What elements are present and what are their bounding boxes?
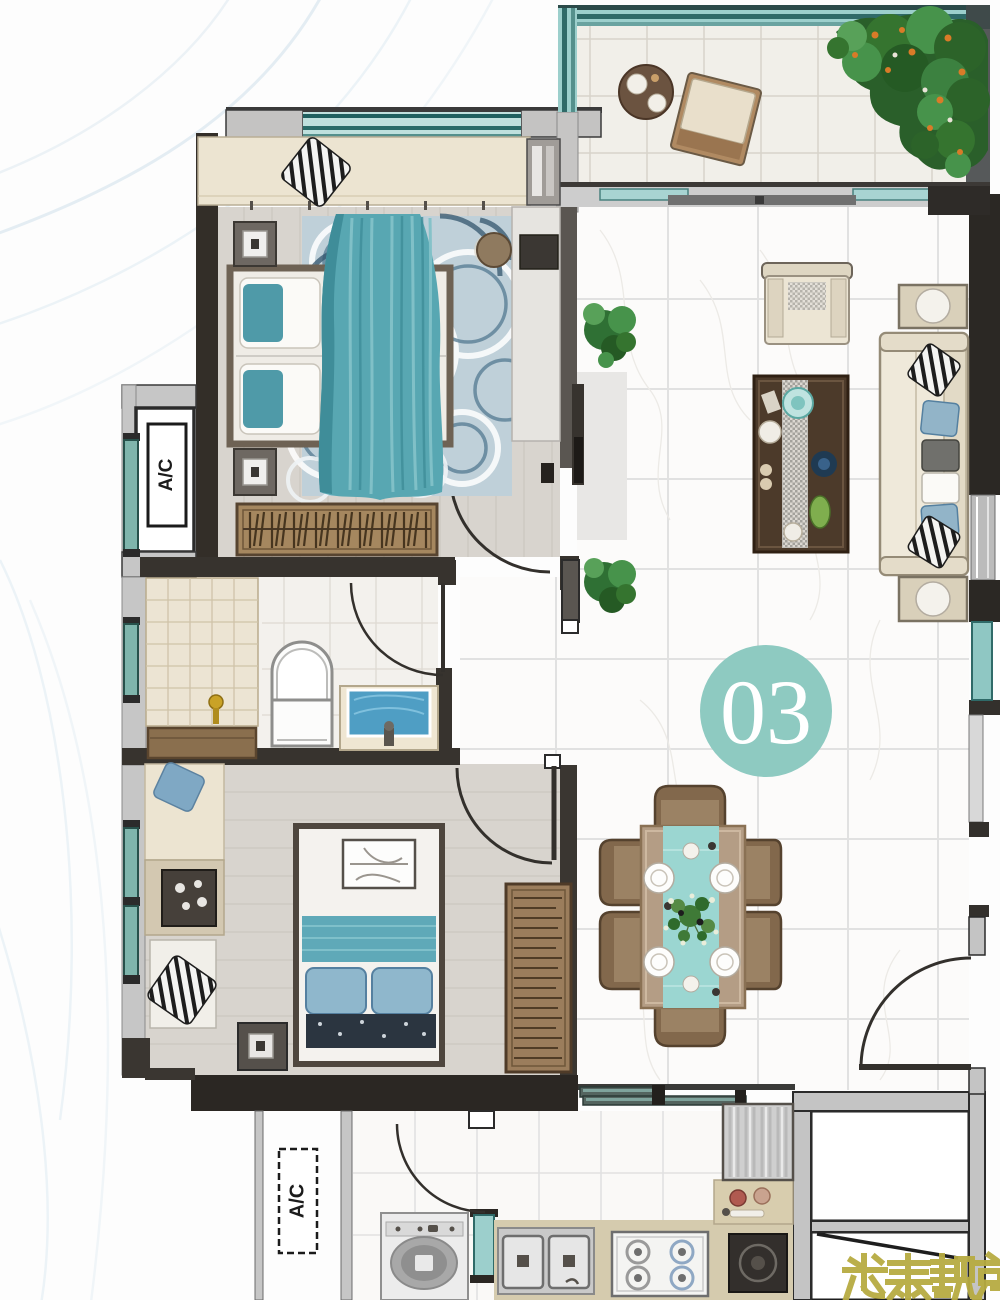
svg-text:03: 03 (720, 661, 812, 763)
svg-text:A/C: A/C (156, 458, 177, 491)
svg-text:A/C: A/C (286, 1184, 308, 1218)
